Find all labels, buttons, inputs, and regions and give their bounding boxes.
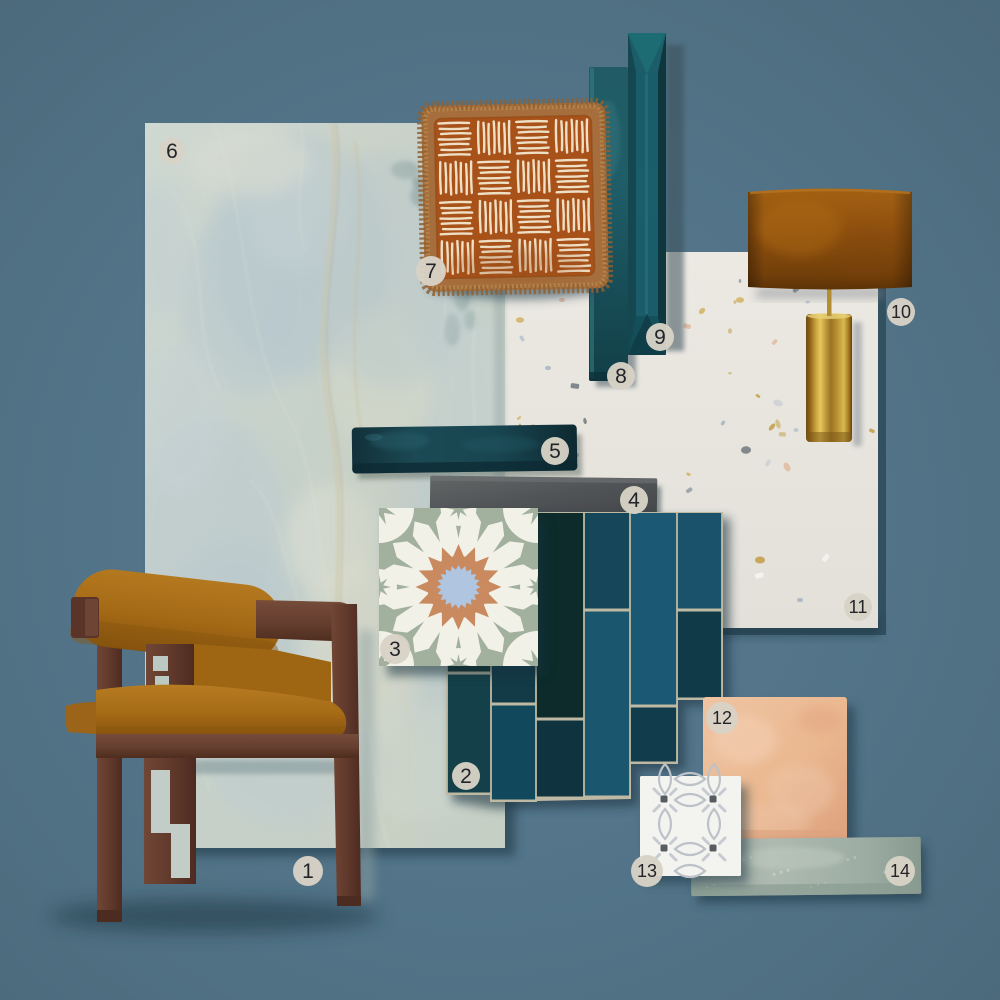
- svg-text:8: 8: [615, 365, 627, 388]
- svg-text:9: 9: [654, 326, 666, 349]
- svg-text:5: 5: [549, 440, 561, 463]
- svg-text:7: 7: [425, 260, 437, 283]
- svg-text:2: 2: [460, 765, 472, 788]
- svg-text:10: 10: [891, 302, 911, 322]
- svg-text:11: 11: [849, 597, 868, 617]
- svg-text:6: 6: [166, 140, 178, 163]
- svg-text:4: 4: [628, 489, 640, 512]
- svg-text:13: 13: [637, 861, 657, 881]
- svg-text:12: 12: [712, 708, 732, 728]
- svg-text:14: 14: [890, 861, 910, 881]
- svg-text:3: 3: [389, 638, 401, 661]
- svg-text:1: 1: [302, 860, 314, 883]
